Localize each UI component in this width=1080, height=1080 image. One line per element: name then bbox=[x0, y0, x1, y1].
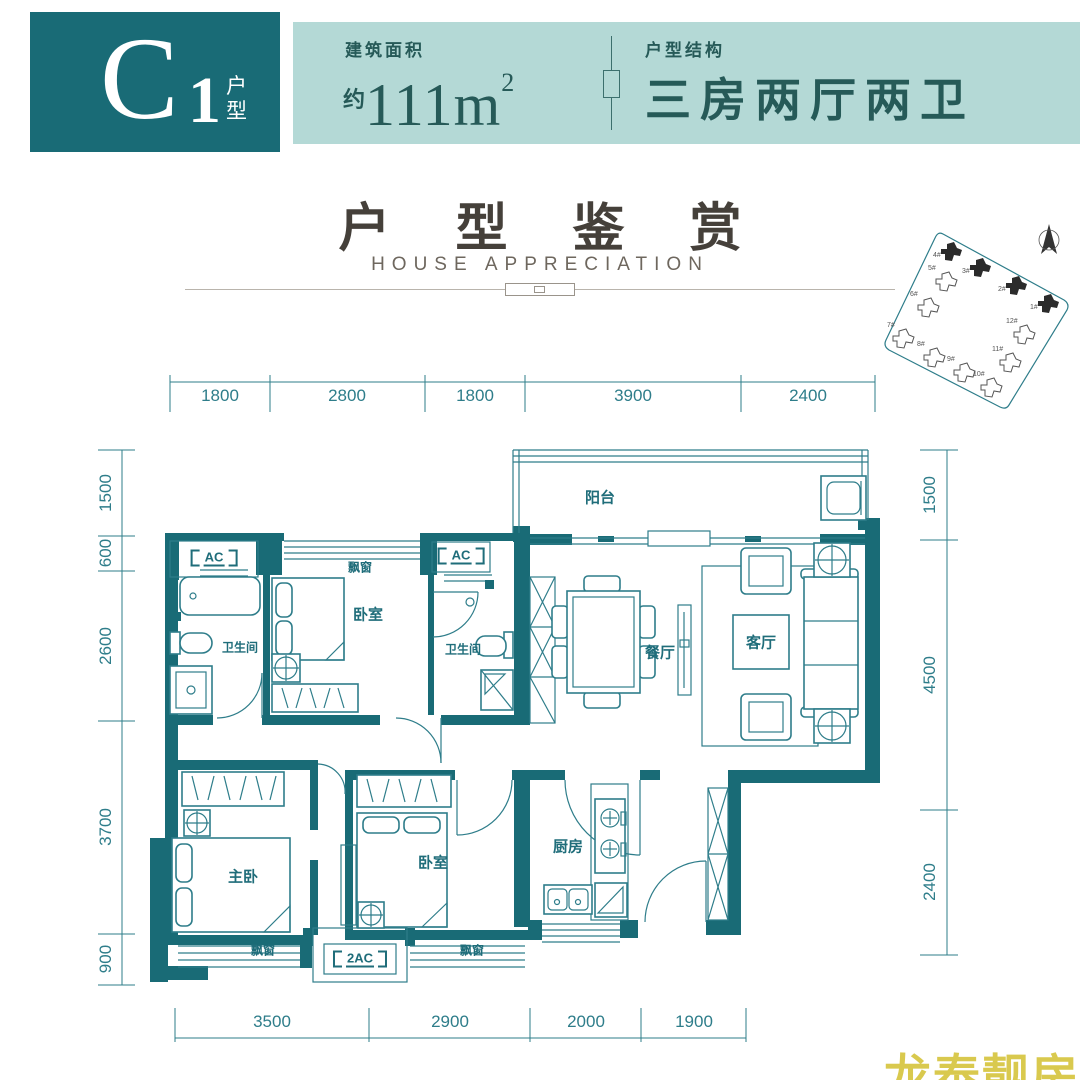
dim-left-3: 2600 bbox=[96, 627, 116, 665]
room-label-dining: 餐厅 bbox=[645, 642, 675, 663]
ac-platform-label-2ac: 2AC bbox=[333, 951, 387, 968]
kitchen-sink-icon bbox=[544, 885, 592, 914]
room-label-bay-window2: 飘窗 bbox=[251, 942, 275, 959]
page: C 1 户 型 建筑面积 约111m2 户型结构 三房两厅两卫 户 型 鉴 赏 … bbox=[0, 0, 1080, 1080]
dim-left-1: 1500 bbox=[96, 474, 116, 512]
room-label-living: 客厅 bbox=[746, 632, 776, 653]
wardrobe-icon bbox=[357, 775, 451, 807]
wardrobe-icon bbox=[182, 772, 284, 806]
dim-bottom-4: 1900 bbox=[675, 1012, 713, 1032]
room-label-kitchen: 厨房 bbox=[553, 836, 583, 857]
room-label-master: 主卧 bbox=[228, 866, 258, 887]
stove-icon bbox=[595, 799, 626, 873]
balcony-windows bbox=[513, 450, 868, 546]
dim-right-3: 2400 bbox=[920, 863, 940, 901]
room-label-bathroom1: 卫生间 bbox=[222, 639, 258, 656]
bracket-icon bbox=[333, 951, 342, 968]
sofa-icon bbox=[801, 569, 858, 717]
dim-left-5: 900 bbox=[96, 945, 116, 973]
dim-top-1: 1800 bbox=[201, 386, 239, 406]
ceiling-symbol-icon bbox=[184, 810, 210, 836]
dim-left-2: 600 bbox=[96, 539, 116, 567]
dim-top-5: 2400 bbox=[789, 386, 827, 406]
ac-platform-label: AC bbox=[191, 550, 238, 567]
dresser-icon bbox=[272, 684, 358, 712]
bathtub-icon bbox=[180, 577, 260, 615]
watermark: 龙泰靓房 bbox=[884, 1038, 1080, 1080]
dim-bottom-3: 2000 bbox=[567, 1012, 605, 1032]
corner-unit-icon bbox=[595, 883, 627, 917]
room-label-balcony: 阳台 bbox=[585, 487, 615, 508]
dim-bottom-2: 2900 bbox=[431, 1012, 469, 1032]
room-label-bedroom1: 卧室 bbox=[353, 604, 383, 625]
bracket-icon bbox=[438, 548, 447, 565]
dim-right-2: 4500 bbox=[920, 656, 940, 694]
bracket-icon bbox=[475, 548, 484, 565]
shower-icon bbox=[481, 670, 513, 710]
dim-top-3: 1800 bbox=[456, 386, 494, 406]
room-label-bedroom2: 卧室 bbox=[418, 852, 448, 873]
ceiling-symbol-icon bbox=[272, 654, 300, 682]
room-label-bay-window: 飘窗 bbox=[348, 559, 372, 576]
room-label-bathroom2: 卫生间 bbox=[445, 641, 481, 658]
sink-icon bbox=[170, 666, 212, 714]
ceiling-symbol-icon bbox=[358, 902, 384, 928]
bracket-icon bbox=[191, 550, 200, 567]
ac-platform-label: AC bbox=[438, 548, 485, 565]
armchair-icon bbox=[741, 694, 791, 740]
ceiling-symbol-icon bbox=[814, 709, 850, 743]
armchair-icon bbox=[741, 548, 791, 594]
washing-machine-icon bbox=[821, 476, 866, 520]
ceiling-symbol-icon bbox=[814, 543, 850, 577]
bracket-icon bbox=[228, 550, 237, 567]
screen-cabinet-icon bbox=[678, 605, 691, 695]
dim-top-2: 2800 bbox=[328, 386, 366, 406]
dim-bottom-1: 3500 bbox=[253, 1012, 291, 1032]
floor-plan bbox=[0, 0, 1080, 1080]
dim-top-4: 3900 bbox=[614, 386, 652, 406]
dining-table-icon bbox=[552, 576, 655, 708]
bed-icon bbox=[272, 578, 344, 660]
dim-left-4: 3700 bbox=[96, 808, 116, 846]
dim-right-1: 1500 bbox=[920, 476, 940, 514]
toilet-icon bbox=[170, 612, 212, 654]
bracket-icon bbox=[378, 951, 387, 968]
room-label-bay-window3: 飘窗 bbox=[460, 942, 484, 959]
